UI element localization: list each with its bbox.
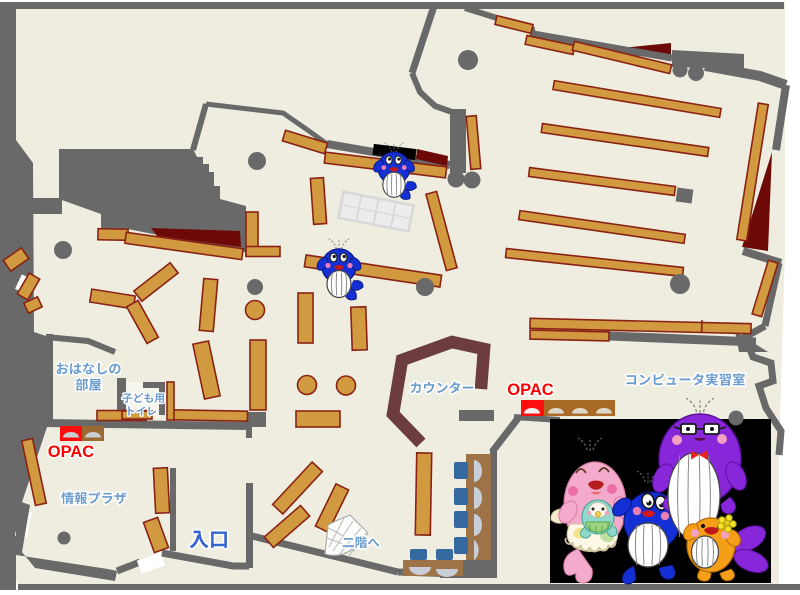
svg-text:OPAC: OPAC xyxy=(48,443,95,461)
svg-text:OPAC: OPAC xyxy=(507,381,554,399)
